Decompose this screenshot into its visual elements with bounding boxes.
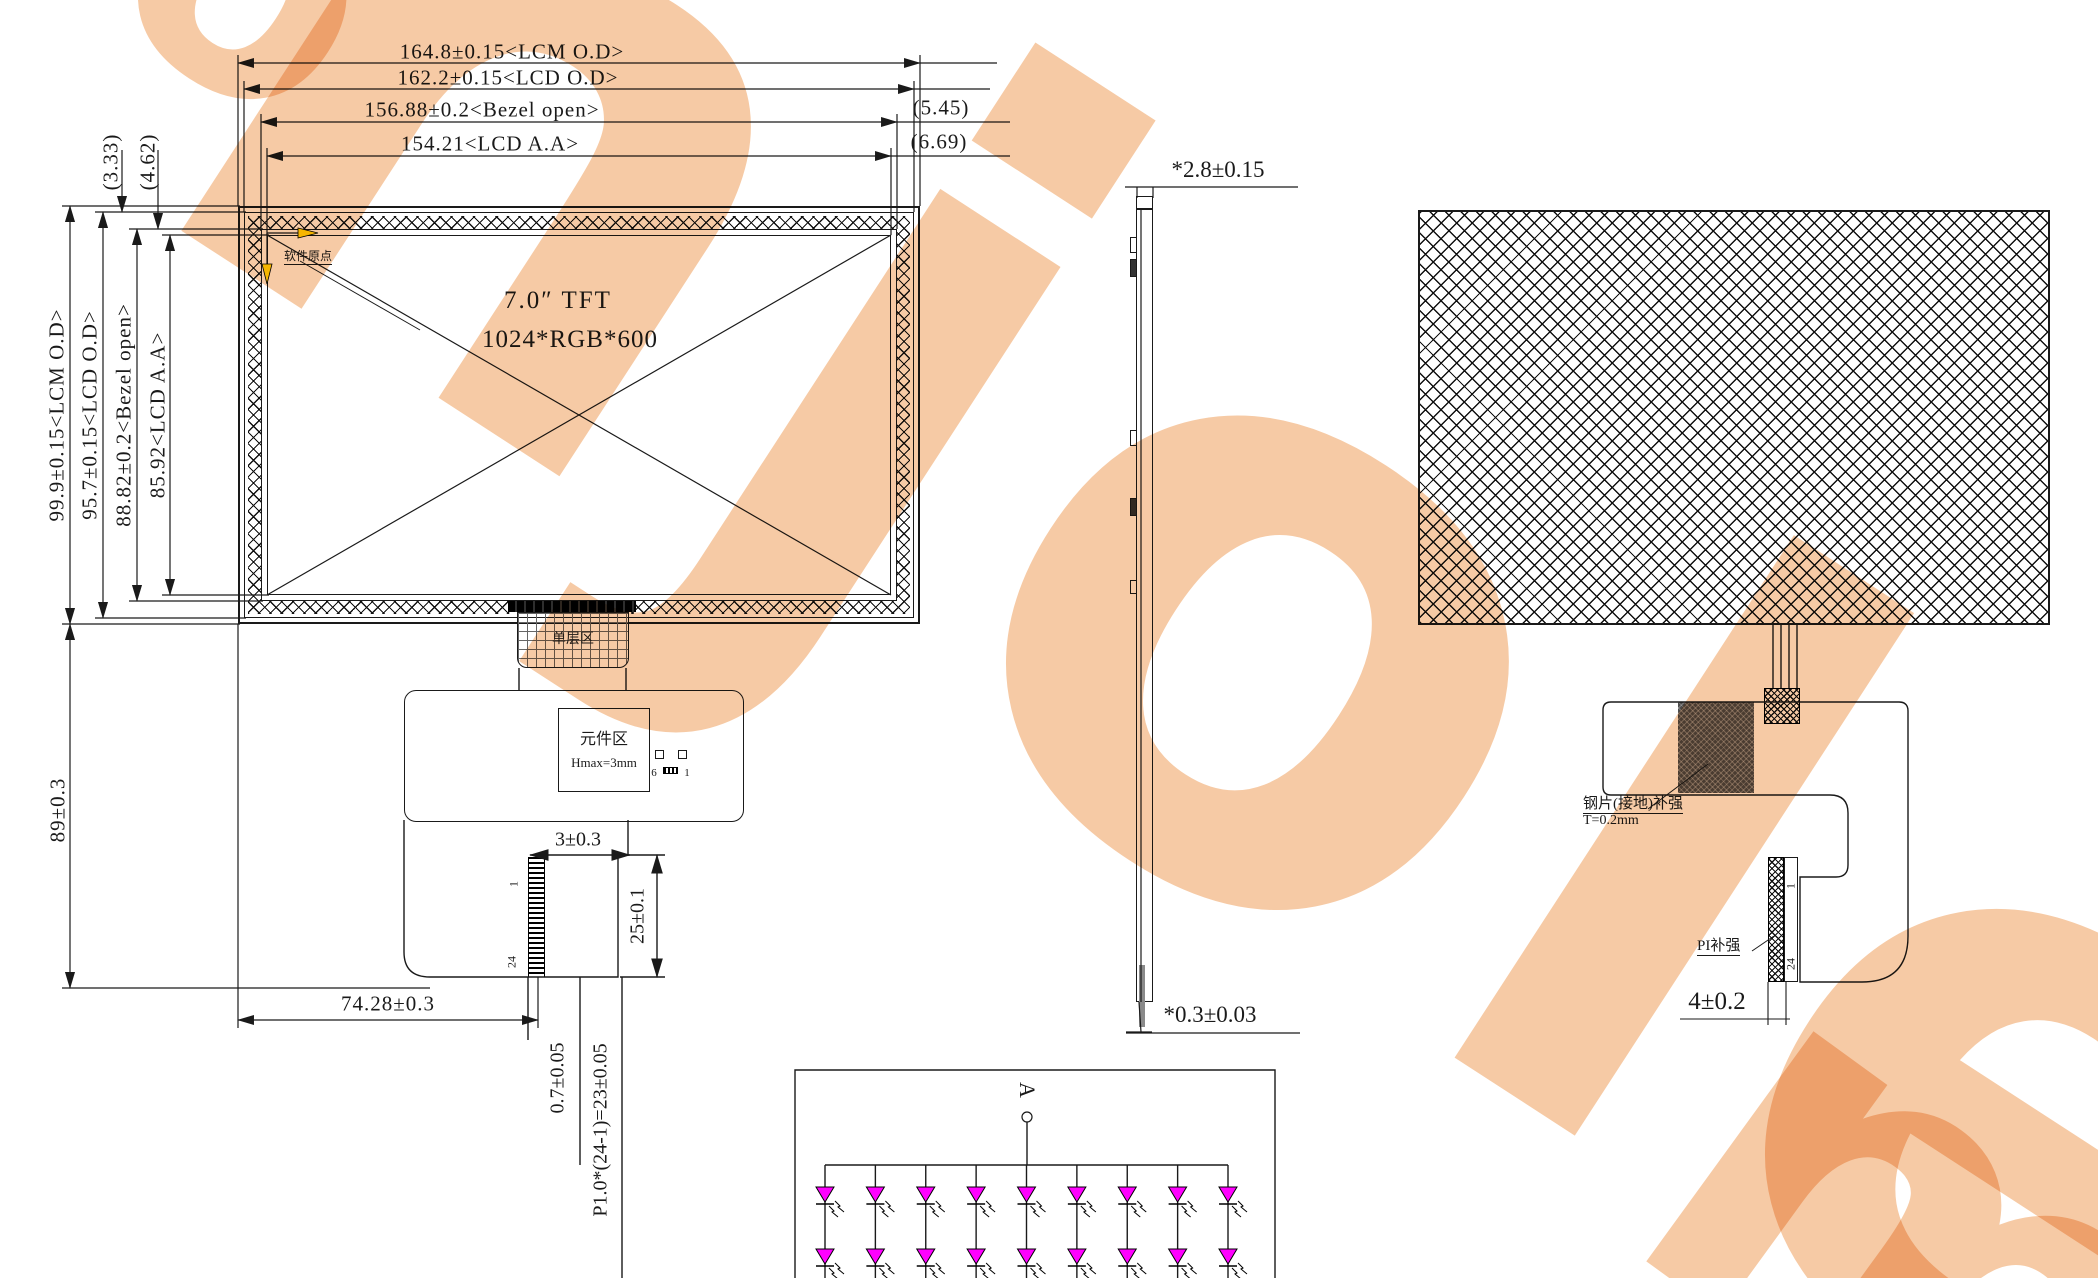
software-origin-label: 软件原点 (284, 247, 332, 265)
connector-pin6-label: 6 (651, 767, 657, 779)
tail-pin24-back: 24 (1784, 958, 1799, 970)
dim-lcm-width: 164.8±0.15<LCM O.D> (400, 40, 625, 65)
drawing-linework (0, 0, 2098, 1278)
dim-pin-pitch: P1.0*(24-1)=23±0.05 (590, 1043, 613, 1216)
dim-module-height: 89±0.3 (46, 778, 71, 843)
backlight-circuit-static (795, 1070, 1275, 1278)
tail-pin1-front: 1 (507, 881, 522, 887)
dim-lcd-width: 162.2±0.15<LCD O.D> (397, 66, 618, 91)
panel-size-text: 7.0″ TFT (504, 287, 612, 315)
panel-resolution-text: 1024*RGB*600 (482, 326, 658, 354)
dim-bottom-offset: 74.28±0.3 (341, 992, 435, 1017)
dim-back-tail: 4±0.2 (1688, 988, 1745, 1016)
dim-tail-width: 3±0.3 (555, 829, 601, 852)
backlight-led-array (816, 1165, 1247, 1278)
tail-pin24-front: 24 (505, 956, 520, 968)
pi-stiffener-label: PI补强 (1697, 934, 1740, 956)
dim-bezel-offset-right1: (5.45) (913, 96, 970, 121)
steel-thickness-label: T=0.2mm (1583, 813, 1639, 829)
tail-pin1-back: 1 (1784, 883, 1799, 889)
dim-tail-height: 25±0.1 (627, 888, 650, 944)
dim-lcm-height: 99.9±0.15<LCM O.D> (45, 308, 70, 521)
dim-lcd-height: 95.7±0.15<LCD O.D> (78, 310, 103, 520)
back-view-lines (1603, 625, 1908, 1025)
component-area-height: Hmax=3mm (571, 755, 637, 771)
side-view-lines (1125, 187, 1300, 1033)
component-area-label: 元件区 (580, 725, 628, 749)
dim-fpc-thickness: *0.3±0.03 (1163, 1002, 1256, 1028)
software-origin-marker (262, 228, 420, 330)
steel-stiffener-label: 钢片(接地)补强 (1583, 792, 1683, 814)
dim-bezel-offset-top2: (4.62) (136, 134, 161, 191)
single-layer-area-label: 单层区 (552, 628, 594, 648)
dim-aa-width: 154.21<LCD A.A> (401, 132, 579, 157)
front-dimension-lines (62, 55, 1010, 1028)
dim-bezel-offset-right2: (6.69) (911, 130, 968, 155)
lcm-outline-drawing: 164.8±0.15<LCM O.D> 162.2±0.15<LCD O.D> … (0, 0, 2098, 1278)
dim-bezel-height: 88.82±0.2<Bezel open> (112, 303, 137, 527)
anode-label: A (1014, 1082, 1040, 1098)
dim-aa-height: 85.92<LCD A.A> (146, 332, 171, 499)
connector-pin1-label: 1 (684, 767, 690, 779)
dim-bezel-offset-top1: (3.33) (99, 134, 124, 191)
dim-thickness: *2.8±0.15 (1171, 157, 1264, 183)
dim-pin-edge: 0.7±0.05 (547, 1043, 570, 1114)
dim-bezel-width: 156.88±0.2<Bezel open> (364, 98, 599, 123)
